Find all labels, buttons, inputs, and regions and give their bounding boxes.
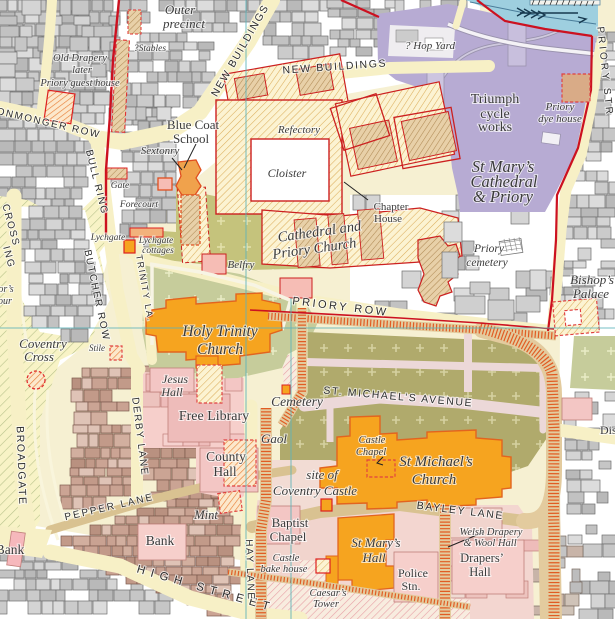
- svg-text:Hall: Hall: [213, 464, 236, 479]
- svg-text:Lychgate: Lychgate: [90, 233, 126, 243]
- svg-text:Holy Trinity: Holy Trinity: [181, 323, 257, 340]
- svg-text:Gate: Gate: [111, 181, 129, 191]
- svg-text:dye house: dye house: [538, 113, 582, 125]
- svg-text:Blue Coat: Blue Coat: [167, 117, 220, 132]
- svg-text:Bank: Bank: [0, 542, 24, 557]
- svg-text:Priory guest house: Priory guest house: [39, 78, 120, 89]
- svg-text:Free Library: Free Library: [179, 409, 249, 424]
- svg-text:cottages: cottages: [142, 246, 174, 256]
- svg-text:Lychgate: Lychgate: [138, 236, 174, 246]
- svg-text:site of: site of: [306, 467, 340, 482]
- svg-text:? Hop Yard: ? Hop Yard: [405, 40, 455, 52]
- svg-text:Hall: Hall: [469, 565, 491, 579]
- svg-text:Stile: Stile: [89, 343, 105, 353]
- svg-text:& Wool Hall: & Wool Hall: [463, 538, 516, 549]
- svg-text:cemetery: cemetery: [466, 257, 508, 269]
- svg-text:Triumph: Triumph: [471, 92, 520, 107]
- svg-text:?Stables: ?Stables: [134, 44, 166, 54]
- svg-text:Gaol: Gaol: [261, 431, 287, 446]
- svg-text:Castle: Castle: [359, 435, 386, 446]
- svg-text:our: our: [0, 296, 12, 307]
- svg-text:Drapers’: Drapers’: [460, 551, 504, 565]
- svg-text:Chapter: Chapter: [374, 201, 409, 213]
- svg-text:Church: Church: [412, 472, 456, 488]
- svg-text:Refectory: Refectory: [277, 124, 320, 136]
- svg-text:Mint: Mint: [193, 508, 218, 522]
- svg-text:Bishop’s: Bishop’s: [570, 272, 614, 287]
- svg-text:Dispen: Dispen: [600, 423, 615, 437]
- svg-text:Sextonry: Sextonry: [141, 145, 180, 157]
- svg-text:Priory: Priory: [473, 243, 505, 255]
- svg-text:Stn.: Stn.: [401, 579, 420, 593]
- svg-text:Chapel: Chapel: [270, 529, 307, 544]
- svg-text:Hall: Hall: [160, 385, 183, 399]
- svg-text:works: works: [478, 120, 512, 135]
- svg-text:Police: Police: [398, 566, 428, 580]
- svg-text:Caesar’s: Caesar’s: [310, 588, 347, 599]
- svg-text:bake house: bake house: [261, 564, 308, 575]
- svg-text:Hall: Hall: [361, 550, 386, 565]
- svg-text:Chapel: Chapel: [356, 447, 386, 458]
- svg-text:Welsh Drapery: Welsh Drapery: [460, 527, 523, 538]
- svg-text:County: County: [206, 449, 246, 464]
- svg-text:Cemetery: Cemetery: [271, 394, 323, 409]
- svg-text:Church: Church: [197, 341, 243, 358]
- svg-text:Old Drapery: Old Drapery: [53, 53, 107, 64]
- svg-text:& Priory: & Priory: [473, 187, 534, 206]
- svg-text:Castle: Castle: [273, 553, 300, 564]
- svg-text:Jesus: Jesus: [162, 372, 188, 386]
- svg-text:Priory: Priory: [545, 101, 575, 113]
- svg-text:Belfry: Belfry: [228, 259, 255, 271]
- svg-text:House: House: [374, 213, 402, 225]
- svg-text:Baptist: Baptist: [272, 515, 309, 530]
- svg-text:or’s: or’s: [0, 284, 14, 295]
- svg-text:precinct: precinct: [162, 16, 205, 31]
- svg-text:St Mary’s: St Mary’s: [351, 535, 400, 550]
- svg-text:Coventry Castle: Coventry Castle: [273, 483, 357, 498]
- svg-text:Forecourt: Forecourt: [119, 200, 159, 210]
- svg-text:Outer: Outer: [165, 2, 196, 17]
- svg-text:Tower: Tower: [313, 599, 340, 610]
- svg-text:Cross: Cross: [24, 349, 54, 364]
- svg-text:Bank: Bank: [146, 533, 175, 548]
- svg-text:HAY LANE: HAY LANE: [243, 539, 256, 601]
- svg-text:School: School: [173, 131, 210, 146]
- svg-text:St Michael’s: St Michael’s: [399, 454, 473, 470]
- svg-text:Palace: Palace: [572, 286, 609, 301]
- svg-text:later: later: [72, 65, 93, 76]
- svg-text:Cloister: Cloister: [268, 166, 307, 180]
